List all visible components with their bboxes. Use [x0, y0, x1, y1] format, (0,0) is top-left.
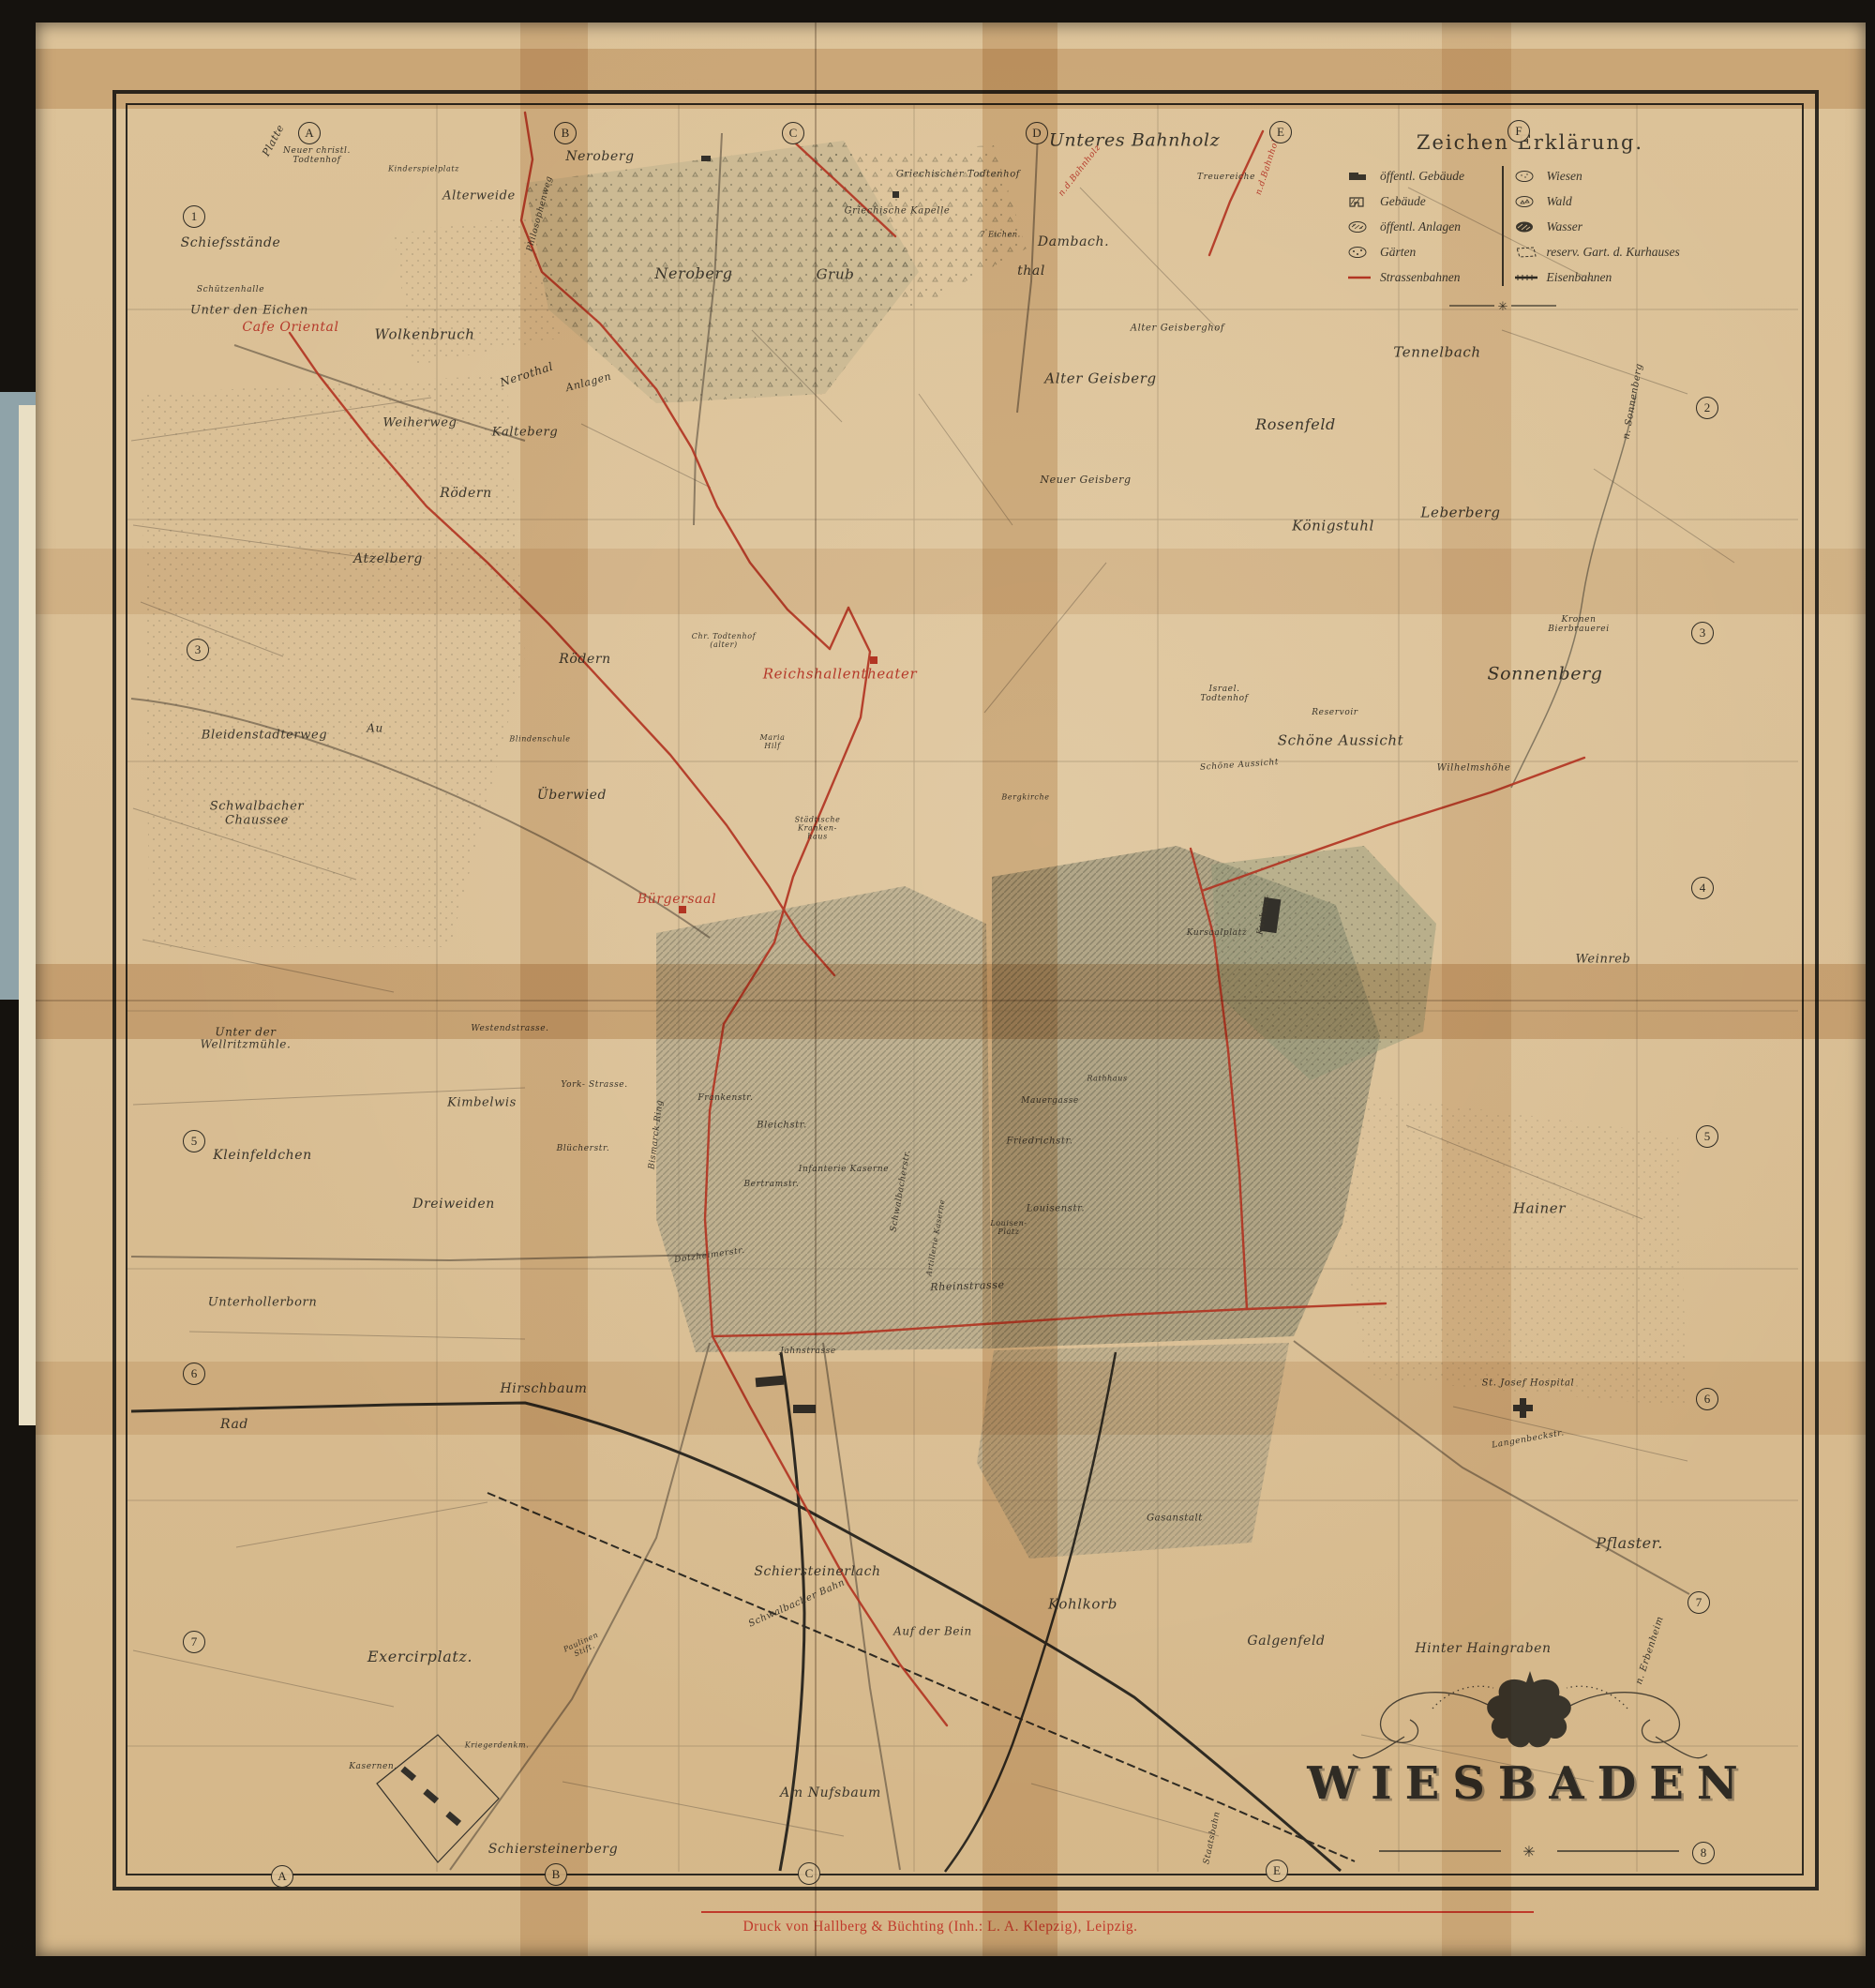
legend-title: Zeichen Erklärung. [1346, 131, 1714, 154]
map-frame-inner [126, 103, 1804, 1875]
legend-label: Eisenbahnen [1547, 270, 1612, 285]
legend-column-left: öffentl. Gebäude Gebäude öffentl. Anlage… [1346, 163, 1502, 290]
legend-public-grounds-icon [1346, 219, 1380, 234]
legend-row: öffentl. Anlagen [1346, 214, 1502, 239]
legend-row: reserv. Gart. d. Kurhauses [1513, 239, 1680, 264]
legend-row: Gebäude [1346, 188, 1502, 214]
legend-row: Wasser [1513, 214, 1680, 239]
imprint-text: Druck von Hallberg & Büchting (Inh.: L. … [742, 1919, 1137, 1935]
legend-reserved-garden-icon [1513, 245, 1547, 260]
legend-meadow-icon [1513, 169, 1547, 184]
legend-row: öffentl. Gebäude [1346, 163, 1502, 188]
legend-railway-icon [1513, 270, 1547, 285]
legend-water-icon [1513, 219, 1547, 234]
legend-public-building-icon [1346, 169, 1380, 184]
legend-column-right: Wiesen Wald Wasser reserv. Gart. d. Kurh… [1513, 163, 1680, 290]
legend-label: Strassenbahnen [1380, 270, 1461, 285]
legend-row: Wiesen [1513, 163, 1680, 188]
legend-label: öffentl. Anlagen [1380, 219, 1461, 234]
legend-label: Wasser [1547, 219, 1583, 234]
legend-row: Gärten [1346, 239, 1502, 264]
legend-row: Eisenbahnen [1513, 264, 1680, 290]
legend-forest-icon [1513, 194, 1547, 209]
legend-label: öffentl. Gebäude [1380, 169, 1464, 184]
legend-row: Strassenbahnen [1346, 264, 1502, 290]
legend-column-divider [1502, 166, 1504, 286]
legend: Zeichen Erklärung. öffentl. Gebäude Gebä… [1346, 131, 1714, 290]
legend-label: reserv. Gart. d. Kurhauses [1547, 245, 1680, 260]
legend-building-icon [1346, 194, 1380, 209]
legend-tramway-icon [1346, 270, 1380, 285]
map-title: WIESBADEN [1307, 1757, 1751, 1810]
legend-label: Wald [1547, 194, 1572, 209]
legend-row: Wald [1513, 188, 1680, 214]
legend-gardens-icon [1346, 245, 1380, 260]
imprint-rule [701, 1911, 1534, 1913]
legend-label: Wiesen [1547, 169, 1582, 184]
legend-label: Gärten [1380, 245, 1416, 260]
legend-label: Gebäude [1380, 194, 1426, 209]
